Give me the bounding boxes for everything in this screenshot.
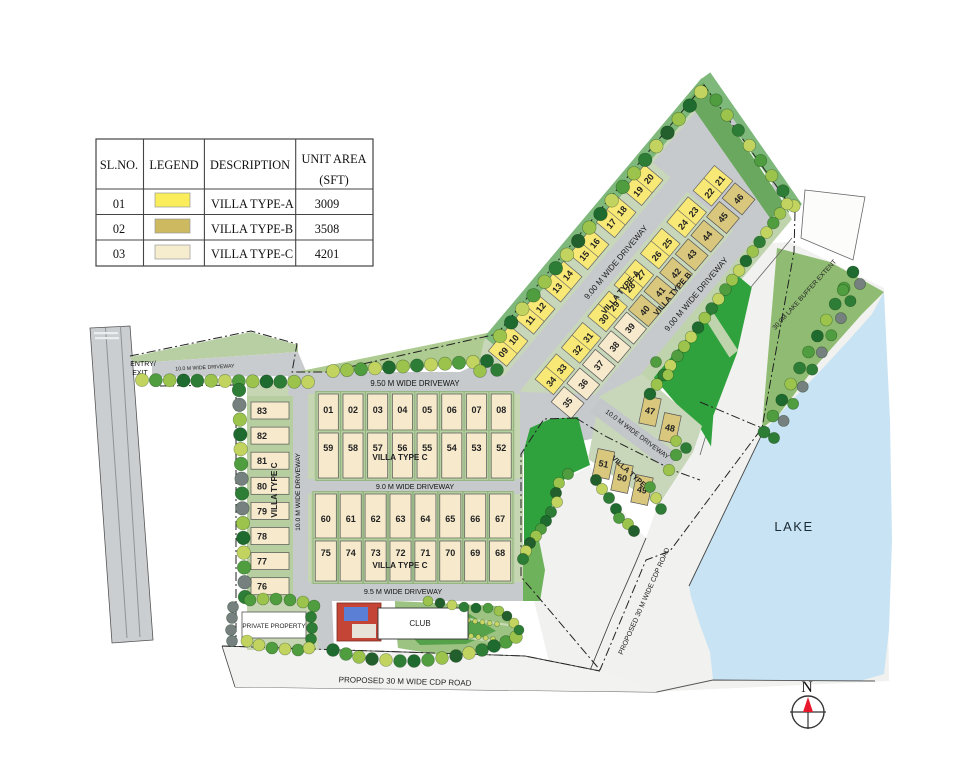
svg-text:51: 51 (598, 458, 610, 470)
svg-text:61: 61 (346, 514, 356, 524)
svg-text:64: 64 (420, 514, 430, 524)
svg-text:(SFT): (SFT) (319, 173, 348, 187)
svg-text:VILLA TYPE C: VILLA TYPE C (372, 561, 427, 570)
svg-text:78: 78 (257, 532, 267, 542)
svg-text:08: 08 (496, 405, 506, 415)
svg-text:65: 65 (445, 514, 455, 524)
svg-text:VILLA TYPE-C: VILLA TYPE-C (211, 247, 293, 261)
svg-text:VILLA TYPE C: VILLA TYPE C (372, 453, 427, 462)
svg-text:06: 06 (447, 405, 457, 415)
svg-text:79: 79 (257, 506, 267, 516)
svg-text:77: 77 (257, 557, 267, 567)
svg-text:9.50 M WIDE DRIVEWAY: 9.50 M WIDE DRIVEWAY (370, 379, 460, 388)
svg-text:48: 48 (664, 422, 676, 434)
svg-text:80: 80 (257, 481, 267, 491)
svg-text:CLUB: CLUB (409, 619, 430, 628)
svg-text:01: 01 (323, 405, 333, 415)
svg-text:74: 74 (346, 548, 356, 558)
svg-text:ENTRY/: ENTRY/ (130, 361, 156, 368)
svg-text:VILLA TYPE C: VILLA TYPE C (270, 462, 279, 517)
svg-text:62: 62 (371, 514, 381, 524)
svg-text:55: 55 (422, 443, 432, 453)
svg-text:70: 70 (445, 548, 455, 558)
svg-text:4201: 4201 (315, 247, 340, 261)
svg-text:76: 76 (257, 582, 267, 592)
svg-text:67: 67 (495, 514, 505, 524)
svg-text:59: 59 (323, 443, 333, 453)
svg-text:68: 68 (495, 548, 505, 558)
svg-text:75: 75 (321, 548, 331, 558)
svg-text:01: 01 (113, 197, 125, 211)
svg-text:LEGEND: LEGEND (149, 158, 198, 172)
svg-text:56: 56 (397, 443, 407, 453)
svg-text:66: 66 (470, 514, 480, 524)
svg-text:54: 54 (447, 443, 457, 453)
svg-text:UNIT AREA: UNIT AREA (301, 152, 366, 166)
svg-text:03: 03 (373, 405, 383, 415)
svg-text:53: 53 (471, 443, 481, 453)
svg-text:VILLA TYPE-A: VILLA TYPE-A (211, 197, 294, 211)
svg-text:03: 03 (113, 247, 125, 261)
svg-text:N: N (801, 679, 813, 696)
svg-text:02: 02 (113, 222, 125, 236)
svg-text:SL.NO.: SL.NO. (100, 158, 138, 172)
svg-text:VILLA TYPE-B: VILLA TYPE-B (211, 222, 293, 236)
svg-text:LAKE: LAKE (774, 519, 813, 534)
svg-text:05: 05 (422, 405, 432, 415)
svg-text:69: 69 (470, 548, 480, 558)
svg-text:81: 81 (257, 456, 267, 466)
svg-text:02: 02 (348, 405, 358, 415)
svg-text:57: 57 (373, 443, 383, 453)
svg-text:83: 83 (257, 406, 267, 416)
svg-text:04: 04 (397, 405, 407, 415)
svg-text:07: 07 (471, 405, 481, 415)
svg-text:10.0 M WIDE DRIVEWAY: 10.0 M WIDE DRIVEWAY (295, 453, 302, 531)
svg-text:72: 72 (395, 548, 405, 558)
svg-text:82: 82 (257, 431, 267, 441)
svg-text:73: 73 (371, 548, 381, 558)
svg-text:3508: 3508 (315, 222, 340, 236)
svg-text:52: 52 (496, 443, 506, 453)
svg-text:63: 63 (395, 514, 405, 524)
svg-text:71: 71 (420, 548, 430, 558)
svg-text:60: 60 (321, 514, 331, 524)
svg-text:DESCRIPTION: DESCRIPTION (210, 158, 290, 172)
svg-text:47: 47 (644, 405, 656, 417)
svg-text:9.5 M WIDE DRIVEWAY: 9.5 M WIDE DRIVEWAY (364, 587, 442, 596)
svg-text:9.0 M WIDE DRIVEWAY: 9.0 M WIDE DRIVEWAY (376, 482, 454, 491)
svg-text:3009: 3009 (315, 197, 340, 211)
svg-text:58: 58 (348, 443, 358, 453)
svg-text:PRIVATE PROPERTY: PRIVATE PROPERTY (242, 623, 306, 630)
